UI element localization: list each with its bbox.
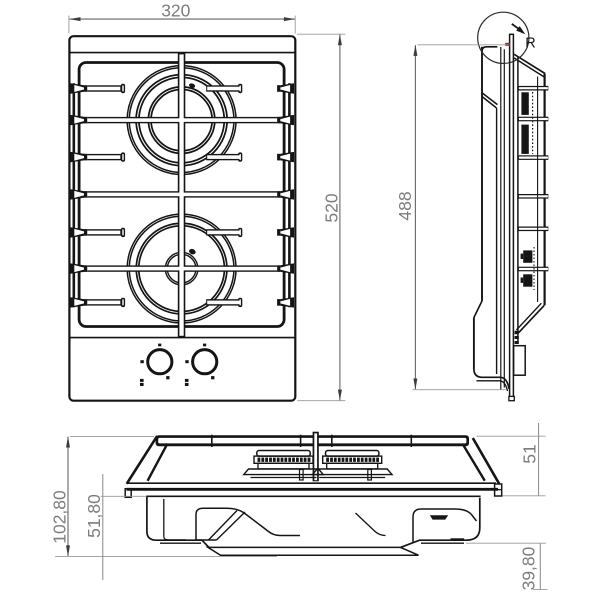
svg-text:51,80: 51,80 xyxy=(84,494,104,538)
svg-text:488: 488 xyxy=(395,191,415,220)
svg-text:39,80: 39,80 xyxy=(518,546,538,590)
svg-text:320: 320 xyxy=(161,0,190,20)
svg-text:520: 520 xyxy=(322,193,342,222)
svg-text:102,80: 102,80 xyxy=(49,490,69,544)
svg-text:R: R xyxy=(525,35,535,51)
svg-text:51: 51 xyxy=(519,444,539,463)
